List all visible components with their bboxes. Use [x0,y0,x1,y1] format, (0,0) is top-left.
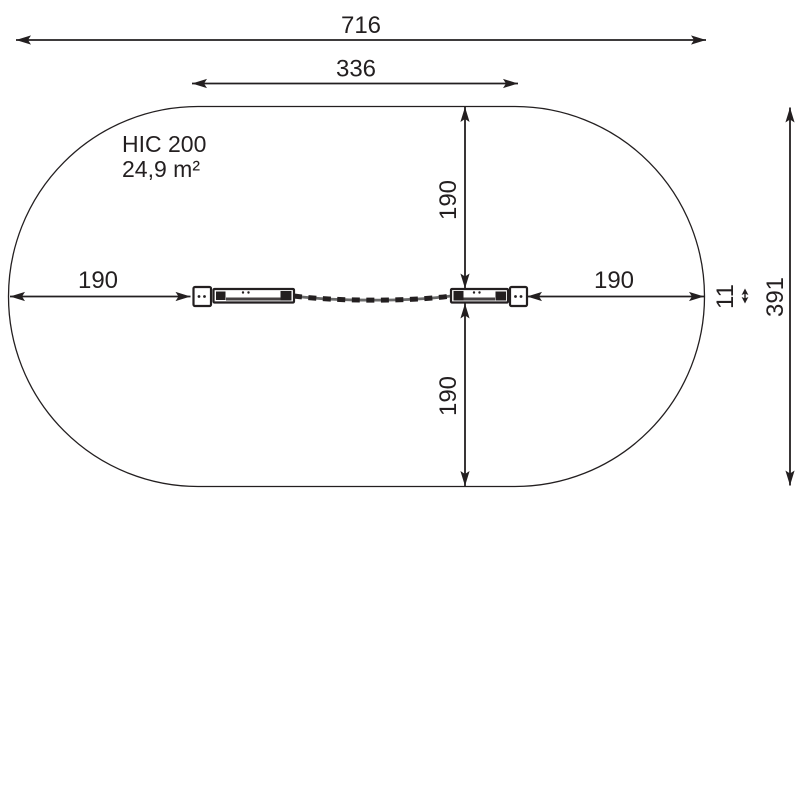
right-beam-strap [462,298,495,301]
left-beam-block [216,292,226,301]
dim-bottom-clearance-label: 190 [435,376,462,416]
zone-label: HIC 200 24,9 m² [122,131,206,182]
right-post-bolt-icon [520,295,523,298]
left-beam-bolt-icon [242,291,244,293]
left-post-bolt-icon [198,295,201,298]
dim-element-width-label: 11 [712,284,739,309]
left-anchor-post [194,287,212,306]
dim-total-width: 716 [16,12,706,45]
zone-label-hic: HIC 200 [122,131,206,157]
dim-left-clearance: 190 [10,267,191,301]
right-post-bolt-icon [514,295,517,298]
left-beam-bolt-icon [247,291,249,293]
left-post-bolt-icon [203,295,206,298]
dim-inner-width: 336 [192,56,518,89]
dim-inner-width-label: 336 [336,56,376,83]
dim-right-clearance-label: 190 [594,267,634,294]
right-beam-bolt-icon [478,291,480,293]
dim-right-clearance: 190 [527,267,704,301]
left-beam-strap [226,298,281,301]
left-beam-block [281,291,292,301]
dim-total-height-label: 391 [762,277,789,317]
dim-top-clearance: 190 [435,107,470,289]
dim-left-clearance-label: 190 [78,267,118,294]
right-beam-block [496,292,507,301]
right-beam-bolt-icon [473,291,475,293]
right-anchor-post [510,287,527,306]
dim-total-width-label: 716 [341,12,381,39]
dim-element-width: 11 [712,284,748,309]
slackline-element [194,287,528,306]
dim-bottom-clearance: 190 [435,304,470,487]
dim-total-height: 391 [762,108,795,486]
left-anchor [194,287,295,306]
plan-drawing: 716 336 190 190 190 190 39 [0,0,800,800]
dim-top-clearance-label: 190 [435,180,462,220]
right-anchor [451,287,527,306]
zone-label-area: 24,9 m² [122,156,200,182]
